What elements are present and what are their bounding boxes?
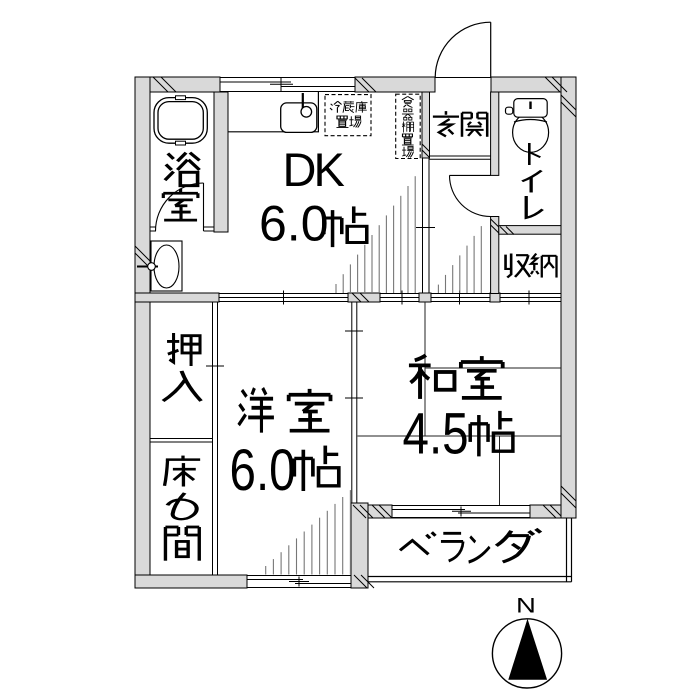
svg-text:6.0: 6.0 [230, 439, 296, 504]
svg-text:N: N [516, 594, 536, 618]
svg-text:DK: DK [283, 143, 345, 196]
svg-text:4.5: 4.5 [403, 402, 469, 467]
svg-text:6.0: 6.0 [259, 196, 329, 252]
